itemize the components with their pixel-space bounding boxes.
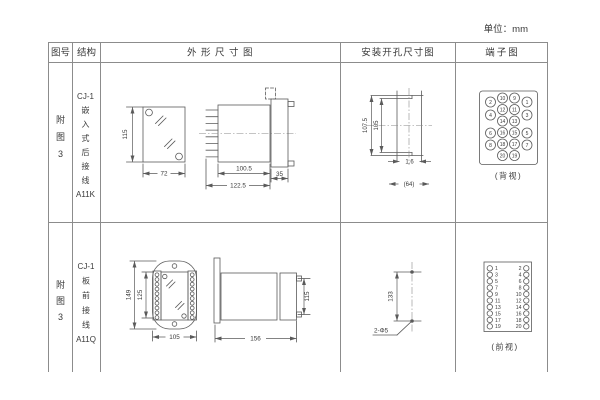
- header-mounting: 安装开孔尺寸图: [361, 47, 435, 59]
- dim-front-height-outer: 149: [126, 289, 133, 300]
- vertical-text-line: 附: [56, 279, 65, 290]
- dim-front-width: 105: [169, 334, 180, 341]
- vertical-text-line: 3: [58, 149, 63, 159]
- terminal-circle: [487, 291, 492, 296]
- terminal-number: 4: [519, 273, 522, 279]
- terminal-number: 7: [526, 143, 529, 149]
- terminal-circle: [524, 272, 529, 277]
- screw-circle: [155, 316, 159, 320]
- terminal-number: 8: [519, 286, 522, 292]
- terminal-circle: [524, 285, 529, 290]
- dim-front-height: 115: [122, 129, 129, 140]
- screw-circle: [190, 306, 194, 310]
- terminal-number: 3: [495, 273, 498, 279]
- terminal-number: 15: [512, 130, 518, 136]
- mirror-hatch-icon: [167, 280, 185, 310]
- terminal-number: 5: [526, 131, 529, 137]
- terminal-number: 11: [495, 298, 500, 304]
- dim-holes-label: 2-Φ5: [374, 328, 389, 335]
- vertical-text-line: 式: [82, 133, 90, 143]
- terminal-number: 10: [500, 96, 506, 102]
- terminal-circle: [524, 279, 529, 284]
- vertical-text-line: 后: [82, 147, 90, 157]
- terminal-number: 19: [495, 324, 501, 330]
- terminal-circle: [524, 291, 529, 296]
- dim-flange-depth: 35: [276, 171, 284, 178]
- vertical-text-line: CJ-1: [77, 92, 94, 101]
- dimension-sheet: 单位：mm 图号 结构 外形尺寸图 安装开孔尺寸图 端子图 附图3 CJ-1嵌入…: [0, 0, 600, 400]
- row2-structure-cell: CJ-1板前接线A11Q: [76, 262, 96, 344]
- row1-structure-cell: CJ-1嵌入式后接线A11K: [76, 92, 96, 199]
- terminal-circle: [524, 311, 529, 316]
- terminal-number: 9: [513, 96, 516, 102]
- screw-circle: [190, 278, 194, 282]
- dim-hole-spacing: 133: [388, 291, 395, 302]
- vertical-text-line: 接: [82, 305, 90, 315]
- vertical-text-line: A11Q: [76, 335, 96, 344]
- terminal-number: 14: [500, 119, 506, 125]
- vertical-text-line: CJ-1: [78, 262, 95, 271]
- sheet-canvas: 单位：mm 图号 结构 外形尺寸图 安装开孔尺寸图 端子图 附图3 CJ-1嵌入…: [0, 0, 600, 400]
- screw-circle: [155, 278, 159, 282]
- terminal-circle: [524, 324, 529, 329]
- screw-circle: [190, 292, 194, 296]
- view-label-front: (前视): [491, 342, 518, 352]
- screw-circle: [155, 292, 159, 296]
- row2-terminal-diagram: 1234567891011121314151617181920 (前视): [484, 262, 532, 352]
- terminal-number: 3: [526, 113, 529, 119]
- header-structure: 结构: [77, 47, 96, 59]
- row2-figure-cell: 附图3: [56, 279, 65, 322]
- vertical-text-line: 线: [82, 319, 90, 329]
- terminal-circle: [487, 304, 492, 309]
- terminal-circle: [487, 298, 492, 303]
- row1-side-view: 100.5 122.5 35: [199, 88, 296, 190]
- row1-front-view: 115 72: [122, 107, 185, 178]
- dim-side-length: 156: [250, 336, 261, 343]
- vertical-text-line: A11K: [76, 190, 96, 199]
- terminal-circle: [487, 311, 492, 316]
- terminal-number: 20: [500, 153, 506, 159]
- dim-cutout-height-inner: 105: [374, 120, 380, 131]
- terminal-number: 18: [516, 318, 522, 324]
- screw-circle: [155, 301, 159, 305]
- terminal-circle: [487, 317, 492, 322]
- terminal-grid-front: 1234567891011121314151617181920: [487, 266, 529, 331]
- vertical-text-line: 接: [82, 161, 90, 171]
- row1-figure-cell: 附图3: [56, 114, 65, 159]
- view-label-back: (背视): [495, 171, 522, 181]
- mirror-hatch-icon: [156, 116, 176, 149]
- terminal-number: 2: [519, 266, 522, 272]
- dim-front-height-inner: 125: [137, 289, 144, 300]
- dim-side-height: 115: [304, 291, 311, 302]
- vertical-text-line: 3: [58, 312, 63, 322]
- terminal-number: 15: [495, 311, 501, 317]
- terminal-circle: [487, 279, 492, 284]
- screw-circle: [155, 282, 159, 286]
- terminal-number: 5: [495, 279, 498, 285]
- terminal-number: 8: [489, 143, 492, 149]
- dim-front-width: 72: [160, 171, 168, 178]
- screw-circle: [155, 306, 159, 310]
- terminal-circle: [524, 317, 529, 322]
- terminal-number: 1: [526, 100, 529, 106]
- terminal-circle: [524, 304, 529, 309]
- terminal-number: 9: [495, 292, 498, 298]
- terminal-circle: [524, 298, 529, 303]
- screw-circle: [190, 282, 194, 286]
- row2-side-view: 115 156: [214, 258, 311, 343]
- screw-circle: [190, 297, 194, 301]
- terminal-circle: [487, 324, 492, 329]
- terminal-number: 11: [512, 107, 517, 113]
- terminal-grid-back: 2468101214161820911131517191357: [486, 93, 533, 161]
- terminal-number: 12: [516, 298, 522, 304]
- header-figure-no: 图号: [51, 48, 70, 59]
- terminal-number: 19: [512, 153, 518, 159]
- terminal-number: 7: [495, 286, 498, 292]
- row2-front-view: 149 125 105: [126, 261, 197, 341]
- screw-circle: [155, 311, 159, 315]
- terminal-number: 14: [516, 305, 522, 311]
- dim-panel-thickness: 1.6: [405, 160, 414, 166]
- table-grid: [48, 43, 548, 373]
- screw-circle: [190, 311, 194, 315]
- dim-cutout-height-outer: 107.5: [363, 117, 369, 133]
- screw-circle: [155, 273, 159, 277]
- screw-circle: [155, 287, 159, 291]
- terminal-circle: [524, 266, 529, 271]
- terminal-number: 17: [512, 142, 518, 148]
- terminal-number: 20: [516, 324, 522, 330]
- latch-dashed-outline: [266, 88, 276, 99]
- dim-total-length: 122.5: [230, 183, 246, 190]
- dim-ref-width: (64): [404, 182, 415, 188]
- row1-mounting-drawing: 107.5 105 1.6 (64): [363, 88, 432, 188]
- terminal-number: 13: [495, 305, 501, 311]
- dim-body-length: 100.5: [236, 166, 252, 173]
- terminal-number: 18: [500, 142, 506, 148]
- vertical-text-line: 板: [82, 276, 90, 286]
- vertical-text-line: 图: [56, 296, 65, 306]
- terminal-circle: [487, 266, 492, 271]
- row2-mounting-drawing: 133 2-Φ5: [373, 262, 421, 335]
- row1-terminal-diagram: 2468101214161820911131517191357 (背视): [480, 91, 538, 181]
- terminal-number: 1: [495, 266, 498, 272]
- vertical-text-line: 图: [56, 132, 65, 142]
- unit-label: 单位：mm: [484, 23, 528, 35]
- terminal-circle: [487, 272, 492, 277]
- terminal-number: 13: [512, 119, 518, 125]
- screw-circle: [190, 316, 194, 320]
- vertical-text-line: 前: [82, 290, 90, 300]
- header-terminal: 端子图: [485, 47, 520, 59]
- terminal-number: 16: [500, 130, 506, 136]
- table-header: 图号 结构 外形尺寸图 安装开孔尺寸图 端子图: [51, 47, 520, 59]
- vertical-text-line: 嵌: [82, 106, 90, 115]
- screw-circle: [155, 297, 159, 301]
- vertical-text-line: 线: [82, 175, 90, 185]
- terminal-number: 4: [489, 113, 492, 119]
- terminal-number: 2: [489, 100, 492, 106]
- terminal-number: 10: [516, 292, 522, 298]
- terminal-circle: [487, 285, 492, 290]
- terminal-number: 6: [489, 131, 492, 137]
- screw-circle: [190, 301, 194, 305]
- terminal-number: 12: [500, 107, 506, 113]
- terminal-number: 16: [516, 311, 522, 317]
- screw-circle: [190, 287, 194, 291]
- vertical-text-line: 附: [56, 114, 65, 125]
- screw-circle: [190, 273, 194, 277]
- vertical-text-line: 入: [82, 120, 90, 129]
- header-outline: 外形尺寸图: [187, 47, 257, 59]
- terminal-number: 6: [519, 279, 522, 285]
- terminal-number: 17: [495, 318, 501, 324]
